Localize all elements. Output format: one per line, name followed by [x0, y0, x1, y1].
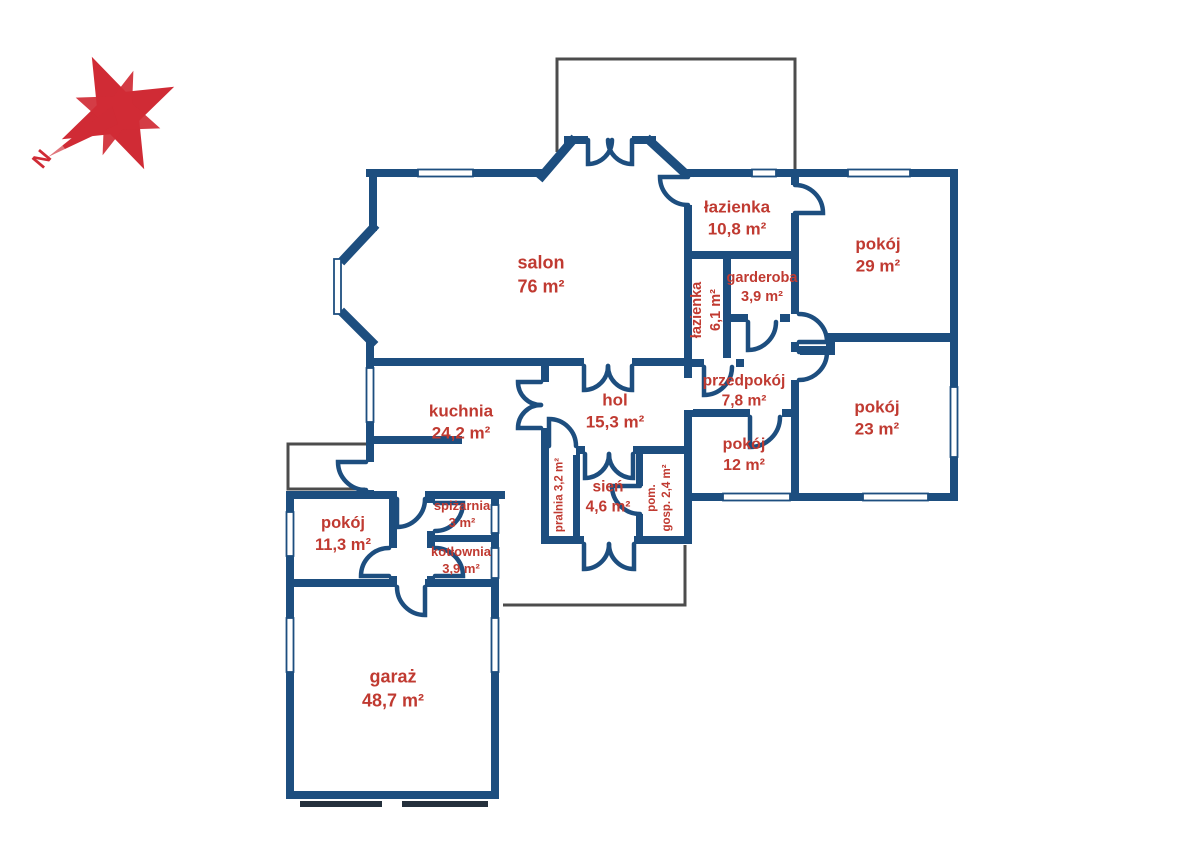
- window-garaz-east: [492, 618, 499, 672]
- walls: [286, 136, 958, 799]
- windows: [287, 170, 958, 673]
- window-pokoj23-right: [951, 387, 958, 457]
- window-lazienka-top: [752, 170, 776, 177]
- terrace-outline-top: [557, 59, 795, 170]
- window-pokoj11-west: [287, 512, 294, 556]
- window-kuchnia-west: [367, 368, 374, 422]
- doors: [338, 140, 827, 615]
- window-pokoj23-bottom: [863, 494, 928, 501]
- window-pokoj29-top: [848, 170, 910, 177]
- porch-outline-kitchen-entry: [288, 444, 366, 489]
- window-garaz-west: [287, 618, 294, 672]
- window-pokoj12-bottom: [723, 494, 790, 501]
- floor-plan-drawing: N: [0, 0, 1200, 863]
- window-salon-top: [418, 170, 473, 177]
- compass-north-label: N: [27, 145, 56, 173]
- window-spizarnia-east: [492, 505, 499, 533]
- window-salon-bay: [334, 259, 341, 314]
- compass-star-secondary: [60, 55, 175, 170]
- porch-outline-bottom: [503, 545, 685, 605]
- garage-door-marks: [300, 801, 488, 807]
- window-kotlownia-east: [492, 548, 499, 578]
- compass-rose: N: [27, 31, 200, 196]
- floor-plan-page: N salon76 m²łazienka10,8 m²pokój29 m²gar…: [0, 0, 1200, 863]
